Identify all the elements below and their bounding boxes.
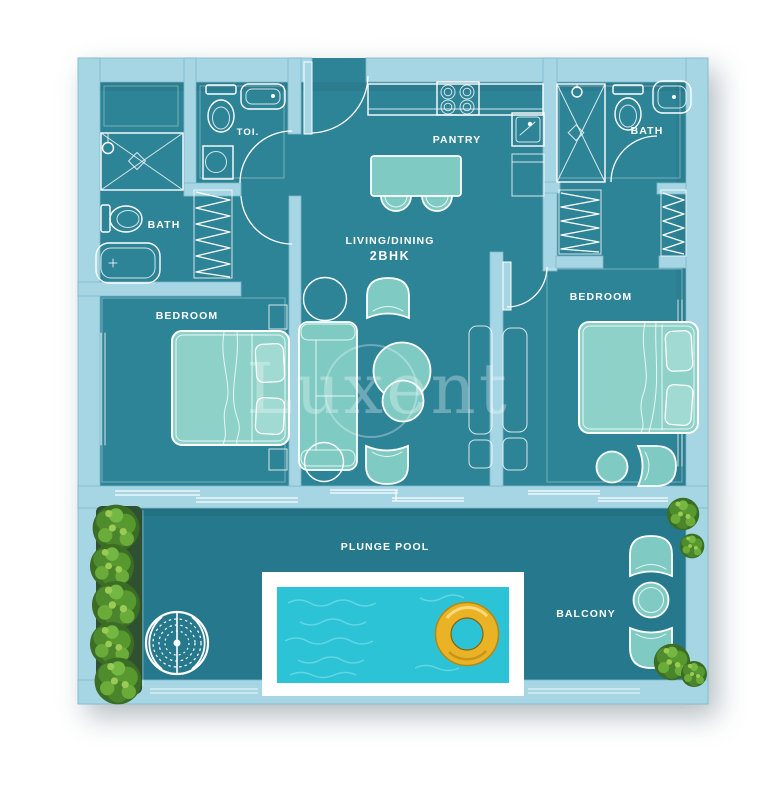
- bed-icon: [579, 322, 698, 433]
- label-bath-left: BATH: [148, 219, 181, 231]
- label-bedroom-left: BEDROOM: [156, 310, 219, 322]
- plant-icon: [95, 658, 142, 705]
- entry-threshold: [306, 58, 366, 84]
- watermark-text: Luxent: [246, 348, 510, 430]
- plant-icon: [681, 661, 707, 687]
- label-living-dining: LIVING/DINING: [346, 235, 435, 247]
- floor-plan: Luxent BATH TOI. PANTRY LIVING/DINING 2B…: [78, 58, 708, 704]
- shadow-strip: [100, 508, 686, 516]
- chair-icon: [638, 446, 676, 486]
- plunge-pool: [262, 572, 524, 696]
- label-plunge-pool: PLUNGE POOL: [341, 541, 430, 553]
- floor-plan-page: Luxent BATH TOI. PANTRY LIVING/DINING 2B…: [0, 0, 761, 789]
- plant-icon: [667, 498, 700, 531]
- label-toi: TOI.: [237, 127, 260, 138]
- label-balcony: BALCONY: [556, 608, 616, 620]
- plant-icon: [92, 581, 140, 629]
- armchair-icon: [366, 446, 408, 484]
- armchair-icon: [367, 278, 409, 318]
- right-bedroom-door-leaf: [503, 262, 511, 310]
- label-bath-right: BATH: [631, 125, 664, 137]
- label-pantry: PANTRY: [433, 134, 482, 146]
- label-unit-type: 2BHK: [370, 249, 410, 263]
- balcony-chair-icon: [630, 536, 672, 576]
- floor-plan-svg: Luxent BATH TOI. PANTRY LIVING/DINING 2B…: [0, 0, 761, 789]
- label-bedroom-right: BEDROOM: [570, 291, 633, 303]
- balcony-table-icon: [634, 583, 669, 618]
- plant-icon: [680, 534, 705, 559]
- pool-float-icon: [436, 603, 499, 666]
- stool-icon: [597, 452, 628, 483]
- watermark: Luxent: [246, 345, 510, 437]
